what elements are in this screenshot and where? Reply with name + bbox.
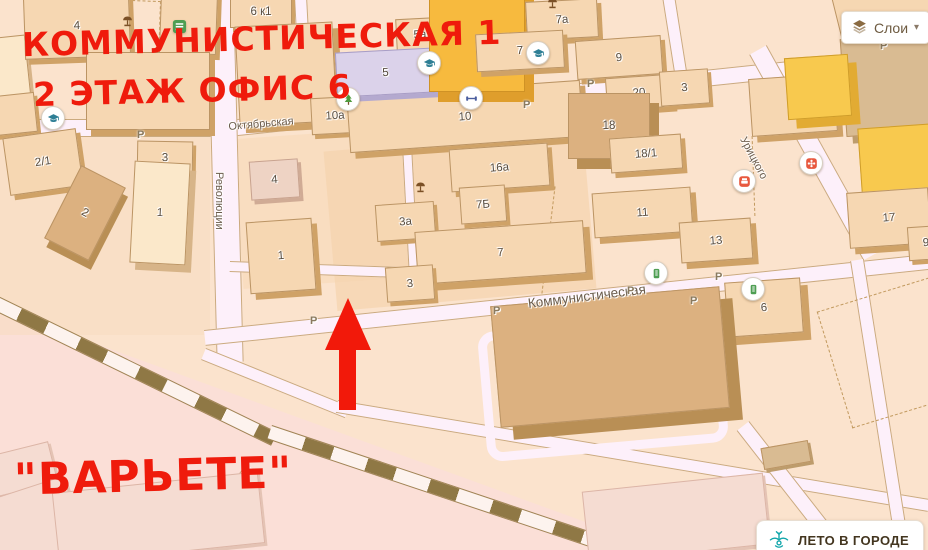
monument-icon xyxy=(413,180,428,195)
parking-marker: Р xyxy=(627,285,634,297)
parking-marker: Р xyxy=(715,271,722,283)
building[interactable] xyxy=(582,473,771,550)
education-icon[interactable] xyxy=(526,41,550,65)
map-canvas[interactable]: 42/13126 к110а105а57а79201818/116а7Б3а73… xyxy=(0,0,928,550)
building-label: 2 xyxy=(79,206,90,220)
summer-doodle-icon xyxy=(767,527,791,550)
street-label-революции: Революции xyxy=(213,172,225,230)
building-9[interactable]: 9 xyxy=(907,225,928,261)
building-label: 7 xyxy=(497,246,504,258)
education-icon[interactable] xyxy=(417,51,441,75)
building-3[interactable]: 3 xyxy=(659,68,710,106)
pharmacy-icon[interactable] xyxy=(799,151,823,175)
summer-promo-badge[interactable]: ЛЕТО В ГОРОДЕ xyxy=(756,520,924,550)
building-label: 7Б xyxy=(476,198,491,211)
arrow-shaft xyxy=(339,350,356,410)
building-label: 2/1 xyxy=(34,155,52,169)
print-shop-icon[interactable] xyxy=(732,169,756,193)
building-11[interactable]: 11 xyxy=(592,187,694,239)
building-label: 10а xyxy=(325,109,345,122)
building-4[interactable]: 4 xyxy=(249,158,301,200)
gym-icon[interactable] xyxy=(459,86,483,110)
building-label: 10 xyxy=(458,110,472,123)
parking-marker: Р xyxy=(493,305,500,317)
building-label: 3 xyxy=(406,277,413,289)
building-9[interactable]: 9 xyxy=(575,35,664,80)
store-icon[interactable] xyxy=(644,261,668,285)
building-1[interactable]: 1 xyxy=(246,218,317,294)
building-18-1[interactable]: 18/1 xyxy=(609,134,683,174)
building-label: 6 xyxy=(760,301,767,313)
monument-icon xyxy=(545,0,560,11)
layers-button-label: Слои xyxy=(874,20,908,36)
layers-icon xyxy=(851,18,868,38)
building-13[interactable]: 13 xyxy=(679,218,754,264)
parking-marker: Р xyxy=(310,315,317,327)
parking-marker: Р xyxy=(587,78,594,90)
building-label: 13 xyxy=(709,234,723,247)
summer-badge-label: ЛЕТО В ГОРОДЕ xyxy=(798,533,909,548)
parking-marker: Р xyxy=(690,295,697,307)
building-label: 18/1 xyxy=(634,147,657,161)
building-label: 16а xyxy=(490,161,510,174)
parking-marker: Р xyxy=(137,129,144,141)
building-label: 9 xyxy=(615,51,622,63)
building-label: 4 xyxy=(271,173,278,185)
building-1[interactable]: 1 xyxy=(129,161,190,266)
annotation-address-line2: 2 ЭТАЖ ОФИС 6 xyxy=(33,70,352,111)
chevron-down-icon: ▾ xyxy=(914,22,919,33)
building-label: 3 xyxy=(681,81,688,93)
parking-marker: Р xyxy=(523,99,530,111)
building-label: 11 xyxy=(636,206,649,219)
building-label: 18 xyxy=(603,120,616,132)
layers-button[interactable]: Слои ▾ xyxy=(841,11,928,44)
store-icon[interactable] xyxy=(741,277,765,301)
annotation-variete: "ВАРЬЕТЕ" xyxy=(13,451,292,502)
arrow-head xyxy=(325,298,371,350)
building-7Б[interactable]: 7Б xyxy=(459,184,507,224)
building-label: 6 к1 xyxy=(250,6,271,18)
building-label: 1 xyxy=(156,207,163,219)
building-label: 17 xyxy=(882,212,896,225)
building-label: 9 xyxy=(922,237,928,249)
building-label: 7 xyxy=(516,45,523,57)
building[interactable] xyxy=(784,54,852,120)
building-label: 3а xyxy=(399,215,413,228)
building-label: 5 xyxy=(382,66,389,78)
building-label: 1 xyxy=(277,250,284,262)
construction-outline-dashed xyxy=(817,278,928,429)
building-3[interactable]: 3 xyxy=(385,264,435,302)
annotation-arrow xyxy=(325,298,371,410)
building[interactable] xyxy=(490,286,730,428)
building-label: 7а xyxy=(555,13,568,26)
